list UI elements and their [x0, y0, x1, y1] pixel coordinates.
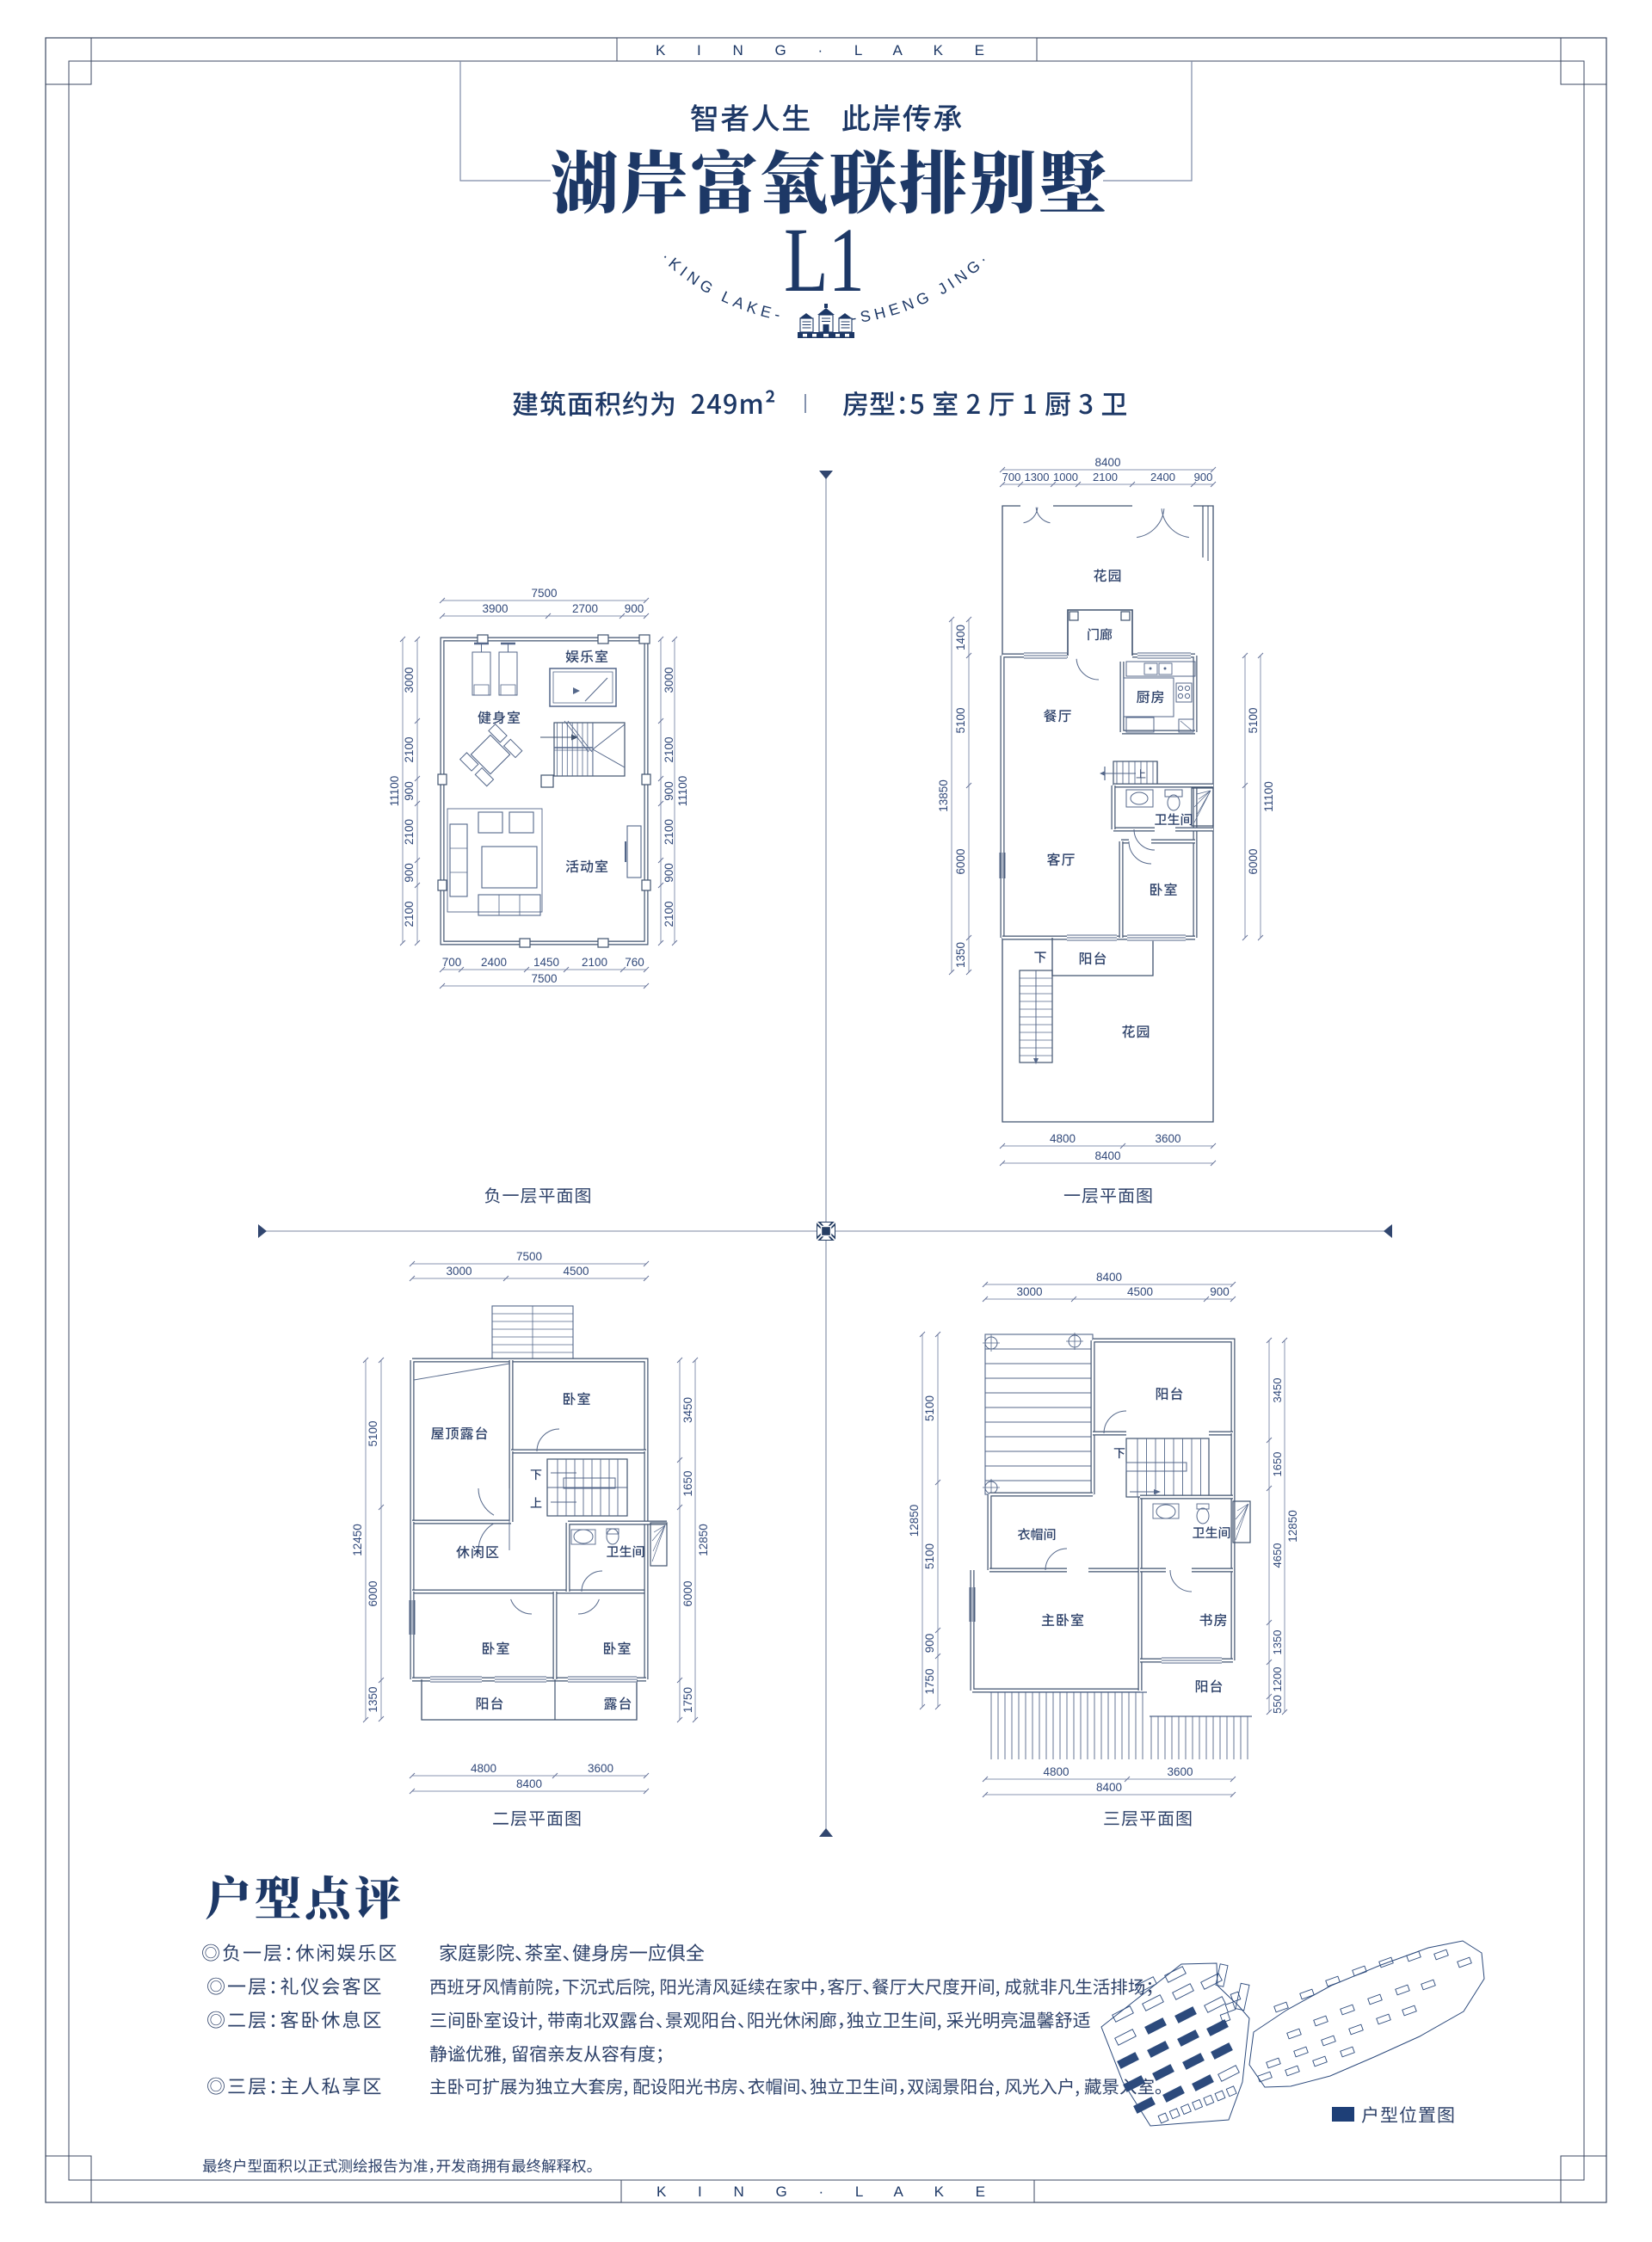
svg-text:5100: 5100 [367, 1420, 379, 1446]
svg-text:3000: 3000 [446, 1265, 472, 1278]
svg-text:5100: 5100 [923, 1543, 936, 1569]
svg-text:1650: 1650 [1271, 1452, 1284, 1477]
svg-text:4500: 4500 [563, 1265, 589, 1278]
svg-text:7500: 7500 [516, 1250, 542, 1263]
svg-text:3600: 3600 [588, 1762, 613, 1775]
svg-text:8400: 8400 [1094, 1149, 1120, 1162]
svg-text:K I N G · L A K E: K I N G · L A K E [656, 2183, 999, 2200]
svg-text:1750: 1750 [923, 1668, 936, 1694]
svg-text:900: 900 [625, 602, 644, 615]
svg-text:6000: 6000 [1247, 848, 1260, 874]
svg-text:8400: 8400 [516, 1777, 542, 1790]
svg-text:12850: 12850 [1286, 1510, 1299, 1543]
svg-text:900: 900 [403, 781, 416, 801]
svg-text:6000: 6000 [954, 848, 967, 874]
svg-text:5100: 5100 [1247, 707, 1260, 733]
svg-text:700: 700 [1002, 471, 1021, 484]
svg-text:11100: 11100 [388, 776, 401, 807]
svg-text:4800: 4800 [1050, 1132, 1076, 1145]
svg-text:12850: 12850 [697, 1524, 710, 1556]
svg-text:K I N G · L A K E: K I N G · L A K E [656, 42, 998, 59]
svg-text:550: 550 [1271, 1695, 1284, 1714]
svg-text:4800: 4800 [1043, 1765, 1069, 1778]
svg-text:1400: 1400 [954, 625, 967, 650]
svg-text:2100: 2100 [403, 901, 416, 927]
svg-text:3000: 3000 [663, 667, 675, 693]
svg-text:900: 900 [663, 781, 675, 801]
svg-text:900: 900 [1194, 471, 1213, 484]
svg-text:1350: 1350 [1271, 1630, 1284, 1655]
svg-text:3000: 3000 [403, 667, 416, 693]
svg-text:2100: 2100 [403, 819, 416, 845]
svg-text:L1: L1 [784, 210, 865, 311]
svg-text:8400: 8400 [1094, 456, 1120, 469]
svg-text:2700: 2700 [572, 602, 598, 615]
svg-text:900: 900 [663, 863, 675, 883]
svg-text:1000: 1000 [1053, 471, 1078, 484]
svg-text:6000: 6000 [367, 1580, 379, 1606]
svg-text:3450: 3450 [681, 1397, 694, 1423]
svg-text:900: 900 [403, 863, 416, 883]
svg-text:900: 900 [1210, 1285, 1230, 1298]
svg-text:8400: 8400 [1096, 1781, 1122, 1794]
svg-text:3600: 3600 [1167, 1765, 1193, 1778]
svg-text:3600: 3600 [1155, 1132, 1180, 1145]
svg-text:5100: 5100 [923, 1395, 936, 1421]
svg-text:1350: 1350 [954, 942, 967, 968]
svg-text:1300: 1300 [1025, 471, 1050, 484]
svg-text:3000: 3000 [1016, 1285, 1042, 1298]
svg-text:2400: 2400 [1150, 471, 1175, 484]
svg-text:11100: 11100 [676, 776, 689, 807]
svg-text:4500: 4500 [1127, 1285, 1153, 1298]
svg-text:6000: 6000 [681, 1580, 694, 1606]
svg-text:1450: 1450 [533, 956, 559, 969]
svg-text:1200: 1200 [1271, 1667, 1284, 1692]
svg-text:1750: 1750 [681, 1687, 694, 1713]
svg-text:7500: 7500 [531, 972, 557, 985]
svg-text:4650: 4650 [1271, 1543, 1284, 1568]
svg-text:760: 760 [625, 956, 644, 969]
svg-text:3450: 3450 [1271, 1378, 1284, 1403]
svg-text:12850: 12850 [908, 1505, 921, 1537]
svg-text:8400: 8400 [1096, 1271, 1122, 1284]
svg-text:2100: 2100 [663, 901, 675, 927]
svg-text:2100: 2100 [663, 819, 675, 845]
svg-text:5100: 5100 [954, 707, 967, 733]
svg-text:900: 900 [923, 1634, 936, 1654]
svg-text:2100: 2100 [1093, 471, 1118, 484]
svg-text:3900: 3900 [482, 602, 508, 615]
svg-text:12450: 12450 [351, 1524, 364, 1556]
svg-text:7500: 7500 [531, 587, 557, 600]
svg-text:2100: 2100 [582, 956, 607, 969]
svg-text:11100: 11100 [1262, 781, 1275, 812]
svg-text:700: 700 [442, 956, 462, 969]
svg-text:2100: 2100 [403, 736, 416, 762]
svg-text:2100: 2100 [663, 736, 675, 762]
svg-text:2400: 2400 [481, 956, 507, 969]
svg-text:4800: 4800 [471, 1762, 496, 1775]
svg-text:1350: 1350 [367, 1686, 379, 1712]
svg-text:1650: 1650 [681, 1470, 694, 1496]
svg-text:13850: 13850 [937, 779, 950, 812]
